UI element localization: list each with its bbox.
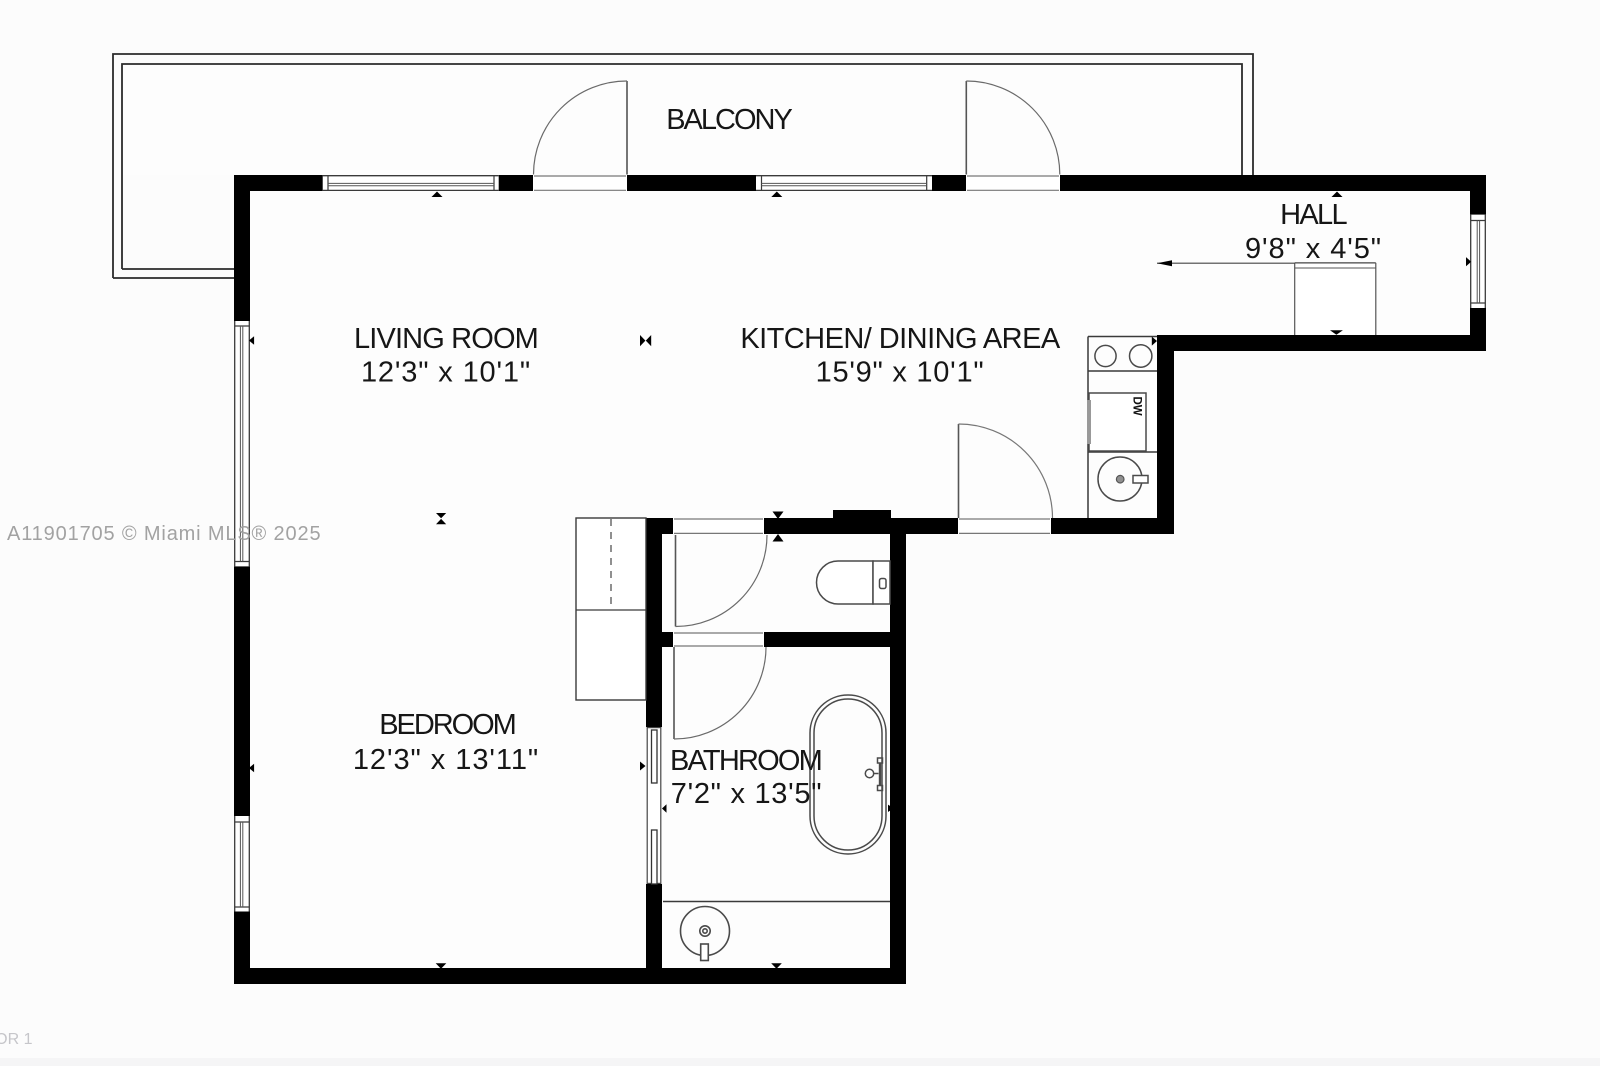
svg-text:HALL: HALL [1280, 199, 1347, 231]
svg-text:DW: DW [1131, 397, 1143, 416]
svg-text:KITCHEN/ DINING AREA: KITCHEN/ DINING AREA [740, 323, 1061, 355]
svg-text:12'3" x 13'11": 12'3" x 13'11" [353, 744, 539, 776]
svg-text:12'3" x 10'1": 12'3" x 10'1" [361, 357, 531, 389]
svg-text:15'9" x 10'1": 15'9" x 10'1" [816, 357, 985, 389]
svg-text:BEDROOM: BEDROOM [379, 709, 515, 741]
svg-text:A11901705 © Miami MLS® 2025: A11901705 © Miami MLS® 2025 [7, 523, 321, 545]
svg-text:FLOOR 1: FLOOR 1 [0, 1031, 33, 1048]
svg-text:LIVING ROOM: LIVING ROOM [354, 323, 538, 355]
svg-text:BATHROOM: BATHROOM [670, 745, 821, 777]
svg-text:BALCONY: BALCONY [666, 104, 792, 136]
svg-text:9'8" x 4'5": 9'8" x 4'5" [1245, 233, 1382, 265]
svg-text:7'2" x 13'5": 7'2" x 13'5" [671, 778, 823, 810]
